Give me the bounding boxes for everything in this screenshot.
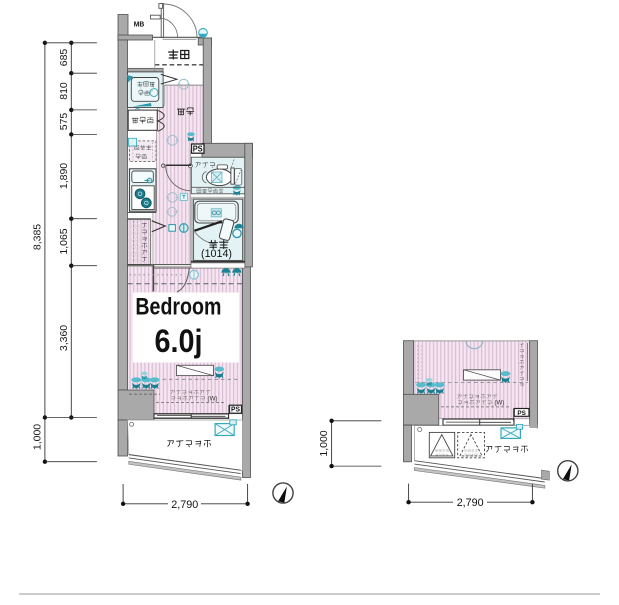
svg-text:2,790: 2,790 <box>457 497 484 509</box>
svg-text:(1014): (1014) <box>201 248 232 260</box>
svg-text:(W): (W) <box>208 395 218 402</box>
svg-text:2,790: 2,790 <box>171 499 198 511</box>
svg-text:Bedroom: Bedroom <box>135 294 221 321</box>
svg-text:810: 810 <box>58 82 70 100</box>
svg-text:575: 575 <box>58 113 70 131</box>
svg-text:1,000: 1,000 <box>318 430 330 456</box>
svg-text:685: 685 <box>58 49 70 67</box>
svg-text:PS: PS <box>231 405 240 414</box>
svg-text:MB: MB <box>134 22 145 29</box>
svg-text:1,065: 1,065 <box>58 228 70 254</box>
svg-text:8,385: 8,385 <box>31 224 43 250</box>
svg-text:1,000: 1,000 <box>31 424 43 450</box>
svg-text:3,360: 3,360 <box>58 325 70 351</box>
svg-text:(W): (W) <box>494 400 504 407</box>
svg-text:PS: PS <box>517 410 526 417</box>
svg-text:PS: PS <box>193 144 203 153</box>
svg-text:6.0j: 6.0j <box>155 323 203 359</box>
svg-text:1,890: 1,890 <box>58 163 70 189</box>
